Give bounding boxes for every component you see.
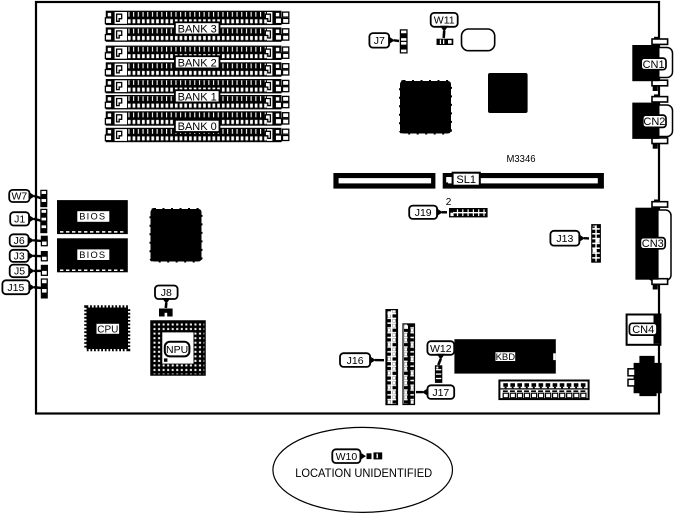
svg-text:BANK 3: BANK 3 bbox=[178, 23, 217, 35]
svg-text:BANK 1: BANK 1 bbox=[178, 91, 217, 103]
svg-text:J19: J19 bbox=[415, 207, 432, 219]
svg-text:W12: W12 bbox=[430, 343, 452, 355]
svg-text:J5: J5 bbox=[14, 266, 25, 278]
svg-text:J17: J17 bbox=[432, 387, 449, 399]
svg-text:CN3: CN3 bbox=[642, 238, 664, 250]
svg-text:W11: W11 bbox=[434, 15, 455, 27]
svg-text:BIOS: BIOS bbox=[79, 212, 106, 222]
svg-text:SL1: SL1 bbox=[456, 174, 476, 186]
svg-text:J1: J1 bbox=[14, 214, 25, 226]
svg-text:CN1: CN1 bbox=[643, 59, 665, 71]
svg-text:BANK 0: BANK 0 bbox=[178, 121, 217, 133]
svg-text:J7: J7 bbox=[374, 35, 385, 47]
svg-text:J13: J13 bbox=[556, 233, 573, 245]
svg-text:W7: W7 bbox=[12, 191, 28, 203]
svg-text:J3: J3 bbox=[14, 251, 25, 263]
svg-text:J15: J15 bbox=[7, 282, 24, 294]
svg-text:M3346: M3346 bbox=[507, 154, 536, 165]
svg-text:NPU: NPU bbox=[166, 344, 188, 356]
svg-text:2: 2 bbox=[446, 197, 452, 208]
svg-text:J8: J8 bbox=[161, 287, 172, 299]
svg-text:BANK 2: BANK 2 bbox=[178, 57, 217, 69]
svg-text:W10: W10 bbox=[336, 451, 358, 463]
svg-text:CN4: CN4 bbox=[632, 324, 654, 336]
svg-text:CN2: CN2 bbox=[643, 116, 665, 128]
svg-text:BIOS: BIOS bbox=[79, 250, 106, 260]
svg-text:CPU: CPU bbox=[97, 324, 118, 335]
svg-text:J16: J16 bbox=[347, 355, 364, 367]
svg-text:J6: J6 bbox=[14, 235, 25, 247]
svg-text:KBD: KBD bbox=[496, 352, 516, 363]
svg-text:LOCATION UNIDENTIFIED: LOCATION UNIDENTIFIED bbox=[295, 466, 432, 480]
